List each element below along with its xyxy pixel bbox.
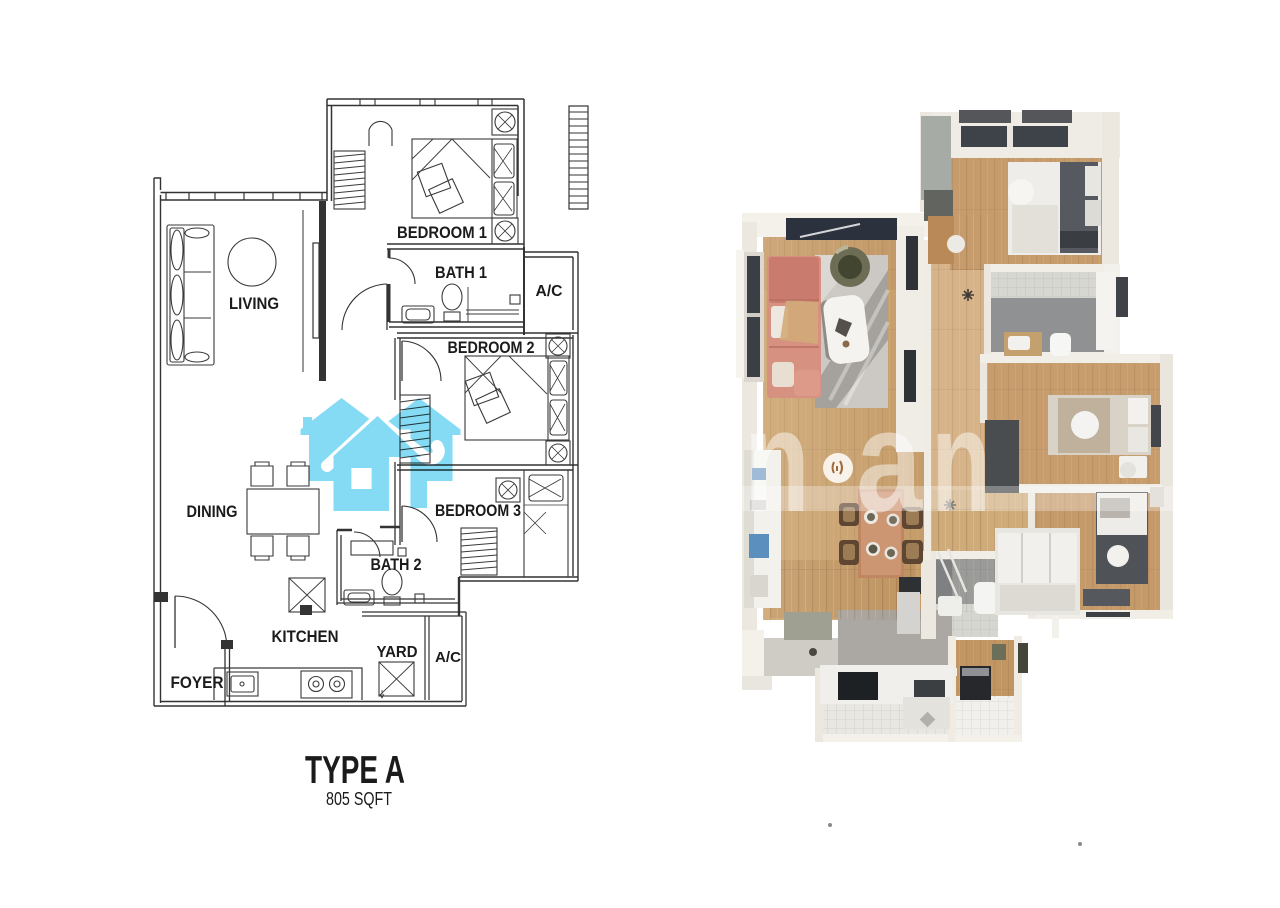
svg-text:LIVING: LIVING (229, 294, 279, 313)
svg-text:BATH 2: BATH 2 (371, 555, 422, 574)
svg-text:DINING: DINING (187, 502, 238, 521)
svg-text:A/C: A/C (536, 283, 563, 300)
svg-text:KITCHEN: KITCHEN (272, 627, 339, 646)
svg-text:a: a (856, 379, 923, 542)
svg-text:BEDROOM 1: BEDROOM 1 (397, 223, 487, 242)
svg-text:BEDROOM 2: BEDROOM 2 (448, 338, 535, 357)
svg-text:805 SQFT: 805 SQFT (326, 789, 392, 809)
svg-text:FOYER: FOYER (171, 673, 224, 692)
svg-text:BEDROOM 3: BEDROOM 3 (435, 501, 521, 520)
svg-text:A/C: A/C (435, 649, 461, 666)
svg-text:TYPE A: TYPE A (305, 749, 405, 792)
svg-text:BATH 1: BATH 1 (435, 263, 487, 282)
svg-text:n: n (931, 379, 991, 542)
svg-text:n: n (744, 379, 810, 542)
svg-text:YARD: YARD (377, 644, 418, 661)
